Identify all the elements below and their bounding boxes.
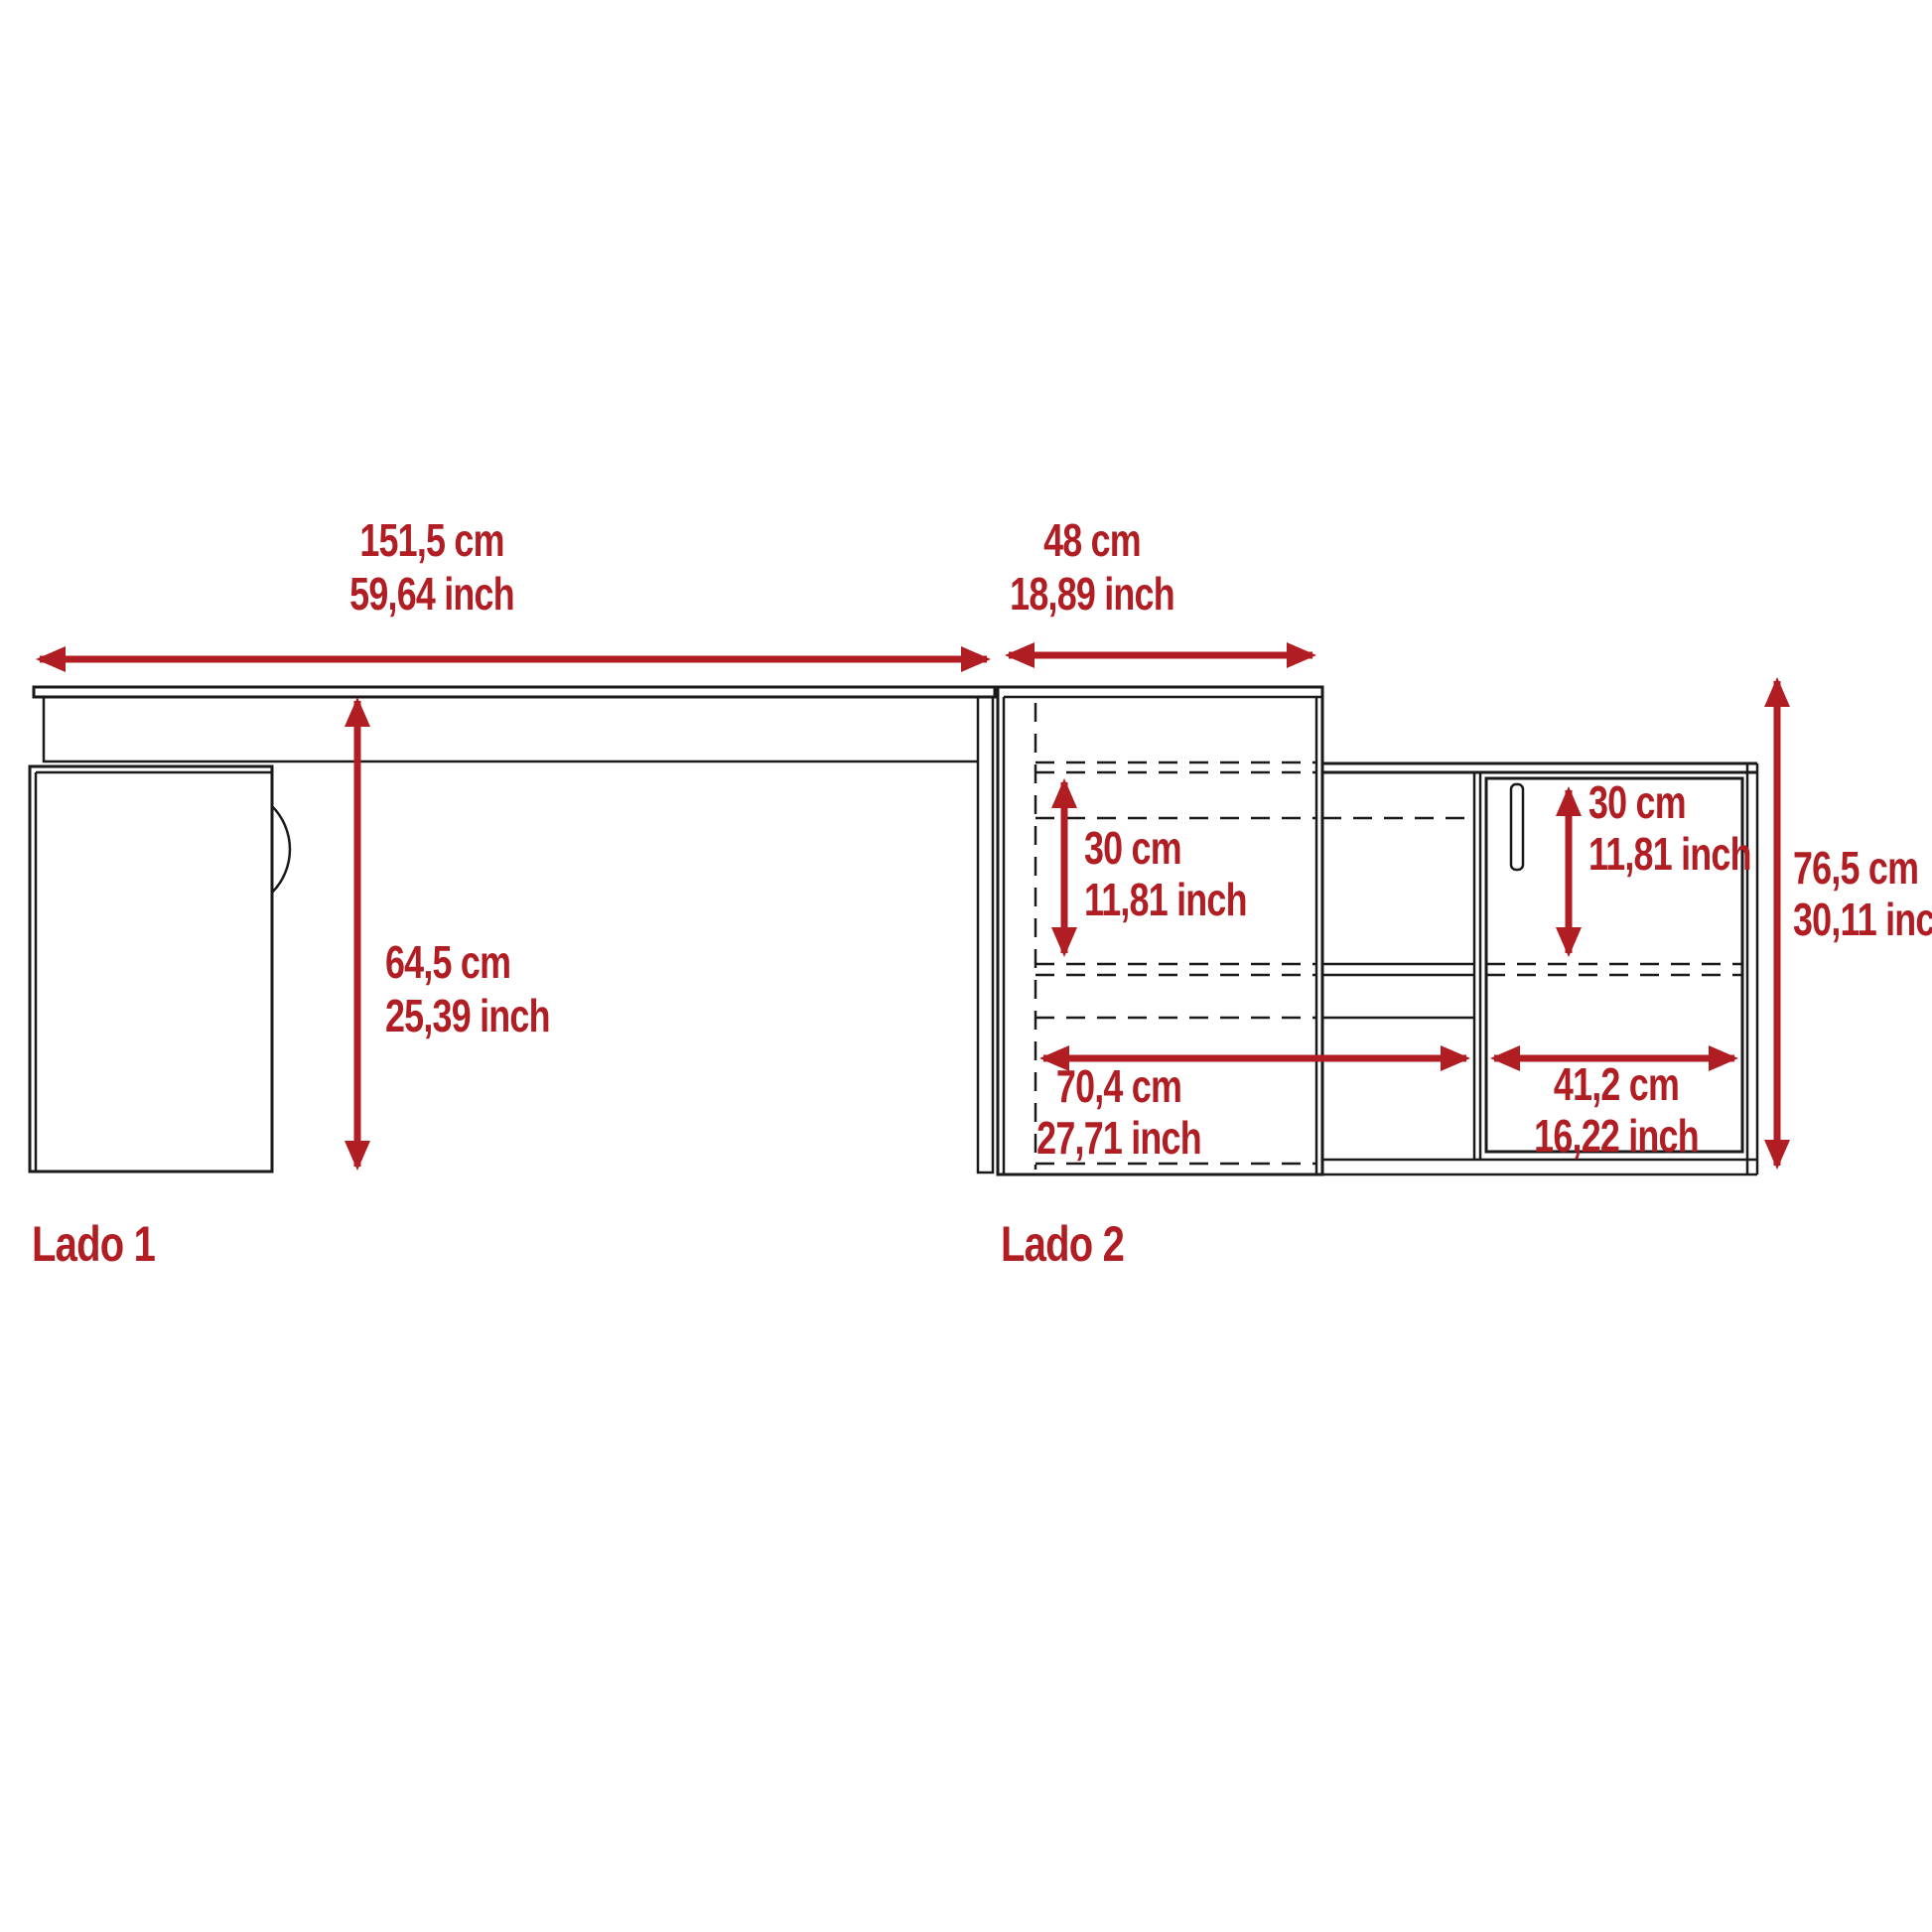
side2-title: Lado 2 — [1001, 1216, 1124, 1272]
dimension-diagram-page: 151,5 cm 59,64 inch 48 cm 18,89 inch 64,… — [0, 0, 1932, 1932]
side2-divider — [1474, 772, 1480, 1160]
side2-open-width-inch-label: 27,71 inch — [1036, 1113, 1201, 1164]
side1-tabletop — [34, 687, 995, 697]
side2-door-width-cm-label: 41,2 cm — [1554, 1059, 1679, 1110]
side2-right-shelf-inch-label: 11,81 inch — [1588, 829, 1751, 880]
side1-clearance-inch-label: 25,39 inch — [385, 991, 550, 1041]
side1-cabinet — [30, 766, 272, 1172]
side2-depth-inch-label: 18,89 inch — [1010, 569, 1174, 620]
dimension-labels: 151,5 cm 59,64 inch 48 cm 18,89 inch 64,… — [349, 515, 1932, 1164]
side1-cabinet-inner-lines — [36, 772, 272, 1172]
side2-left-shelf-cm-label: 30 cm — [1084, 823, 1181, 874]
side2-door-handle-slot — [1511, 784, 1523, 870]
side2-left-shelf-inch-label: 11,81 inch — [1084, 875, 1247, 925]
side1-apron — [44, 697, 978, 761]
side2-door-width-inch-label: 16,22 inch — [1534, 1111, 1699, 1162]
furniture-dimension-diagram: 151,5 cm 59,64 inch 48 cm 18,89 inch 64,… — [0, 0, 1932, 1932]
side2-depth-cm-label: 48 cm — [1043, 515, 1141, 566]
side1-side-panel — [978, 697, 993, 1173]
side2-console-bottom — [1322, 1160, 1757, 1174]
side1-width-cm-label: 151,5 cm — [359, 515, 503, 566]
side2-total-height-inch-label: 30,11 inch — [1793, 895, 1932, 945]
side2-open-width-cm-label: 70,4 cm — [1056, 1061, 1181, 1112]
side2-open-shelf-lines — [1322, 964, 1474, 1018]
side1-width-inch-label: 59,64 inch — [349, 569, 514, 620]
side1-drawing — [30, 687, 995, 1173]
side2-total-height-cm-label: 76,5 cm — [1793, 843, 1918, 894]
side1-clearance-cm-label: 64,5 cm — [385, 937, 510, 988]
side2-door-hidden-shelf — [1486, 964, 1742, 975]
view-titles: Lado 1 Lado 2 — [32, 1216, 1124, 1272]
side2-console-top — [1322, 763, 1757, 772]
side1-door-handle-arc — [272, 806, 290, 893]
side2-console-right-edge — [1747, 763, 1757, 1174]
side1-title: Lado 1 — [32, 1216, 155, 1272]
side2-right-shelf-cm-label: 30 cm — [1588, 777, 1686, 828]
dimension-arrows — [40, 655, 1777, 1167]
